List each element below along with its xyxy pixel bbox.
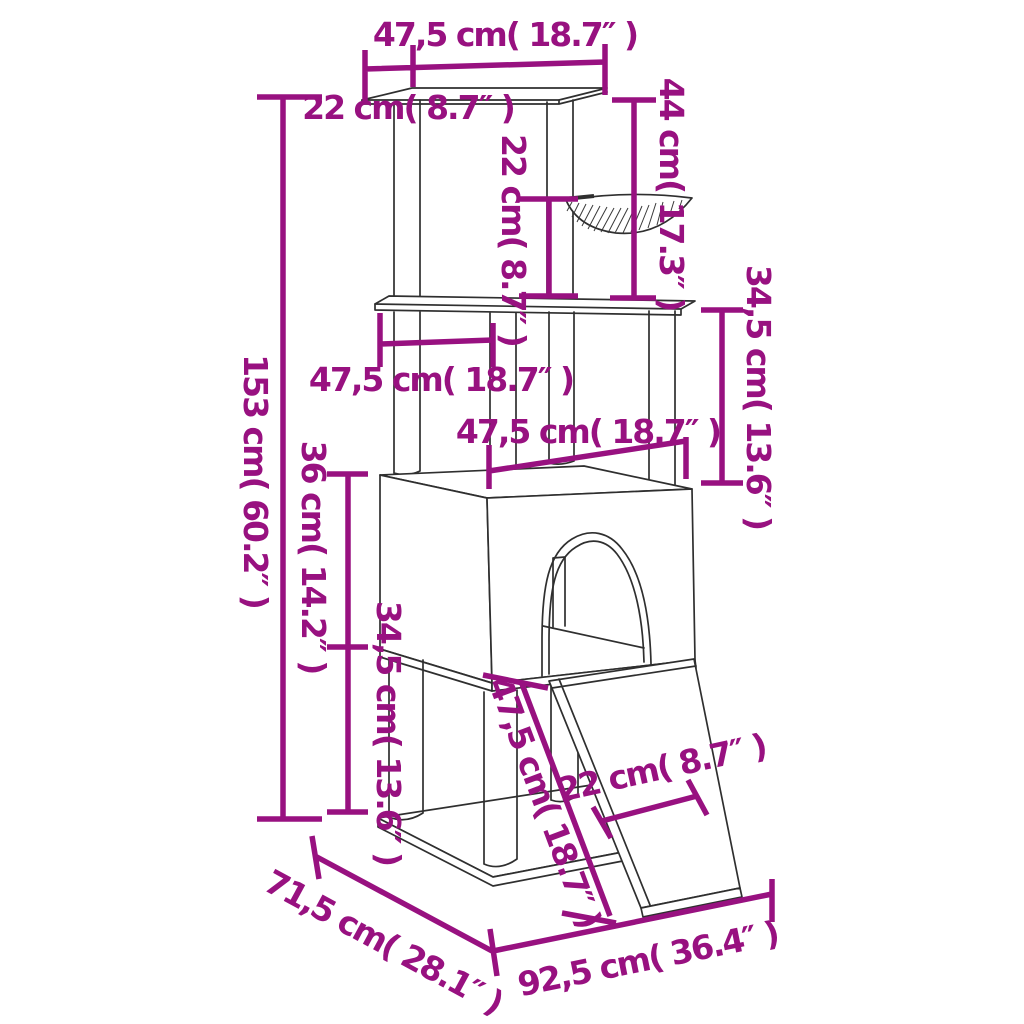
dim-top-section-height-label: 44 cm( 17.3″ ) (652, 78, 691, 311)
dim-hammock-height-label: 22 cm( 8.7″ ) (494, 134, 533, 346)
dim-top-platform-width-label: 47,5 cm( 18.7″ ) (373, 15, 637, 54)
dim-middle-platform-line (380, 313, 493, 367)
dim-condo-width-label: 47,5 cm( 18.7″ ) (456, 412, 720, 451)
dim-middle-platform-width-label: 47,5 cm( 18.7″ ) (309, 360, 573, 399)
diagram-canvas: 47,5 cm( 18.7″ ) 22 cm( 8.7″ ) 153 cm( 6… (0, 0, 1024, 1024)
dimension-diagram: 47,5 cm( 18.7″ ) 22 cm( 8.7″ ) 153 cm( 6… (0, 0, 1024, 1024)
scratching-post (394, 100, 420, 304)
dim-total-height-label: 153 cm( 60.2″ ) (236, 354, 275, 608)
dim-upper-section-height-label: 34,5 cm( 13.6″ ) (739, 265, 778, 529)
dim-condo-height-label: 36 cm( 14.2″ ) (294, 441, 333, 674)
condo-front-face (487, 489, 695, 683)
dim-top-platform-depth-label: 22 cm( 8.7″ ) (302, 88, 514, 127)
scratching-post (649, 311, 675, 490)
dim-lower-section-height-label: 34,5 cm( 13.6″ ) (369, 601, 408, 865)
dim-upper-section-line (701, 310, 743, 483)
dim-base-width-label: 92,5 cm( 36.4″ ) (514, 913, 781, 1004)
